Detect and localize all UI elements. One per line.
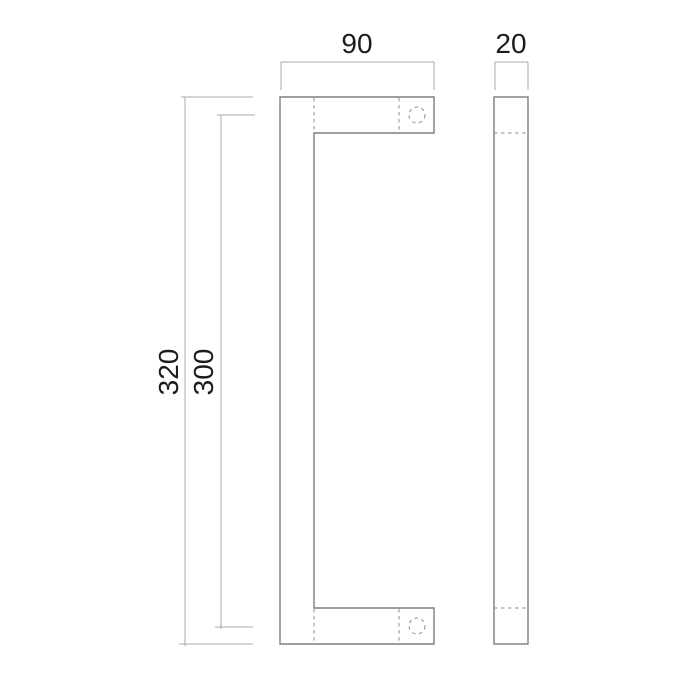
hole-centers-dim-label: 300 [188,349,219,396]
front-view [280,97,434,644]
pull-handle-drawing: 90 20 320 300 [0,0,700,700]
handle-front-outline [280,97,434,644]
bottom-mounting-hole [409,618,425,634]
technical-drawing-canvas: 90 20 320 300 [0,0,700,700]
handle-side-outline [494,97,528,644]
depth-dim-label: 20 [495,28,526,59]
side-view [494,97,528,644]
dimension-depth: 20 [495,28,528,90]
dimension-width: 90 [281,28,434,90]
overall-height-dim-label: 320 [153,349,184,396]
top-mounting-hole [409,107,425,123]
dimension-hole-centers: 300 [188,115,255,629]
width-dim-label: 90 [341,28,372,59]
